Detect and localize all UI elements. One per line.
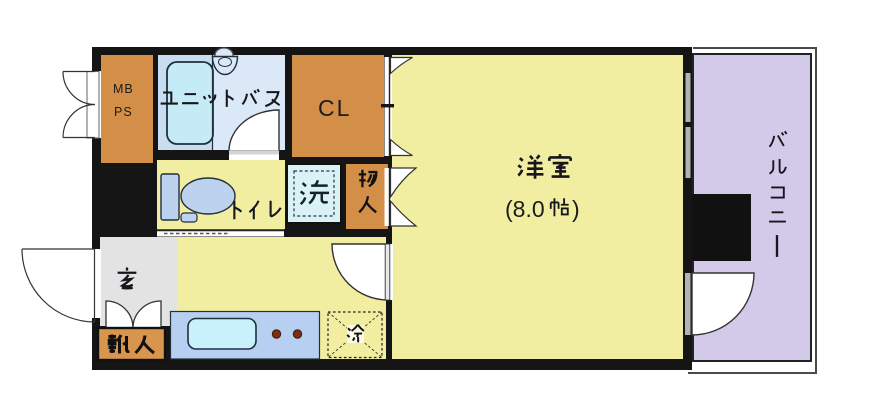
svg-text:MB: MB (113, 82, 134, 96)
svg-text:CL: CL (318, 95, 351, 121)
svg-text:): ) (572, 196, 580, 222)
svg-text:(8.0: (8.0 (505, 196, 545, 222)
svg-text:PS: PS (114, 105, 133, 119)
